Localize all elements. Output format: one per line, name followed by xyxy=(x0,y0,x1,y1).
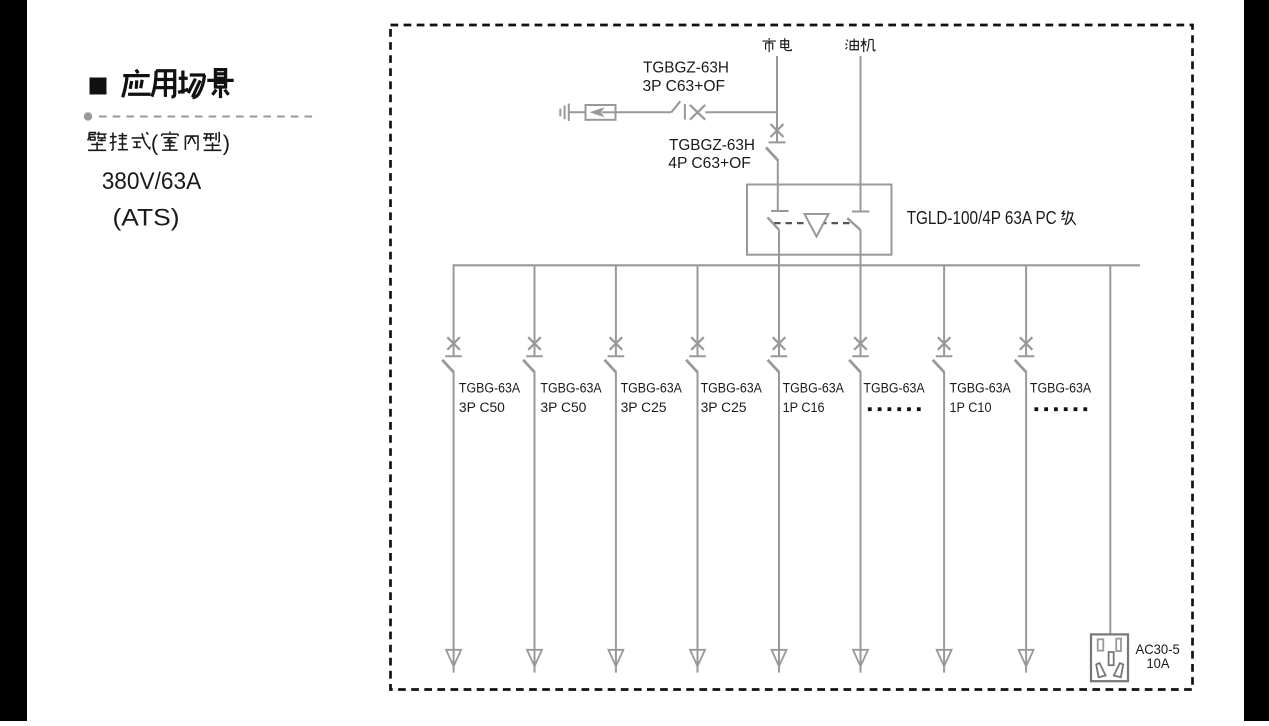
svg-text:): ) xyxy=(223,131,230,156)
svg-text:1P C16: 1P C16 xyxy=(783,400,825,415)
svg-text:TGBG-63A: TGBG-63A xyxy=(950,380,1011,395)
svg-text:3P C50: 3P C50 xyxy=(540,400,586,415)
svg-text:10A: 10A xyxy=(1147,655,1171,671)
svg-text:1P C10: 1P C10 xyxy=(950,400,992,415)
svg-text:TGBG-63A: TGBG-63A xyxy=(783,380,844,395)
svg-text:3P C63+OF: 3P C63+OF xyxy=(643,78,726,95)
svg-text:(ATS): (ATS) xyxy=(113,205,180,232)
svg-text:TGBG-63A: TGBG-63A xyxy=(863,380,924,395)
svg-text:TGBG-63A: TGBG-63A xyxy=(459,380,520,395)
svg-text:3P C50: 3P C50 xyxy=(459,400,505,415)
svg-text:TGBGZ-63H: TGBGZ-63H xyxy=(669,137,755,154)
svg-text:3P C25: 3P C25 xyxy=(621,400,667,415)
svg-text:TGBG-63A: TGBG-63A xyxy=(1030,380,1091,395)
svg-text:(: ( xyxy=(151,131,159,156)
svg-text:TGBG-63A: TGBG-63A xyxy=(621,380,682,395)
svg-text:TGLD-100/4P 63A PC: TGLD-100/4P 63A PC xyxy=(907,208,1057,228)
svg-text:TGBGZ-63H: TGBGZ-63H xyxy=(643,60,729,77)
svg-text:TGBG-63A: TGBG-63A xyxy=(540,380,601,395)
svg-text:380V/63A: 380V/63A xyxy=(102,168,202,195)
svg-text:TGBG-63A: TGBG-63A xyxy=(701,380,762,395)
svg-text:3P C25: 3P C25 xyxy=(701,400,747,415)
svg-text:4P C63+OF: 4P C63+OF xyxy=(668,155,751,172)
